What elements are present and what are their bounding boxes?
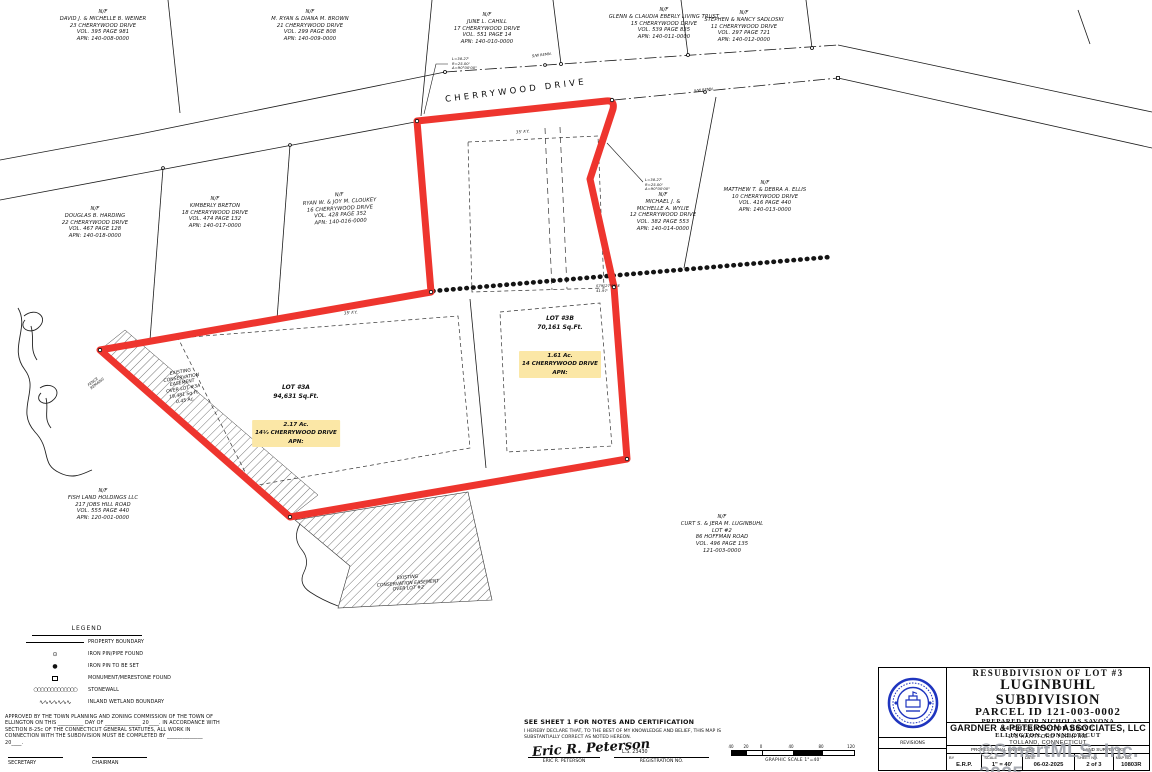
surveyor-name-line: ERIC R. PETERSON: [528, 757, 600, 764]
parcel-label-breton: N/F KIMBERLY BRETON 18 CHERRYWOOD DRIVE …: [182, 196, 248, 230]
title-block-titles: RESUBDIVISION OF LOT #3 LUGINBUHL SUBDIV…: [947, 668, 1149, 723]
legend-row-stonewall: ○○○○○○○○○○○○○ STONEWALL: [22, 686, 172, 696]
secretary-signature-line: SECRETARY: [8, 757, 63, 766]
parcel-label-wylie: N/F MICHAEL J. & MICHELLE A. WYLIE 12 CH…: [630, 192, 696, 233]
revisions-label: REVISIONS: [879, 738, 946, 749]
legend-row-iron-pin-pipe-found: ⊙ IRON PIN/PIPE FOUND: [22, 650, 172, 660]
title-block: REVISIONS RESUBDIVISION OF LOT #3 LUGINB…: [878, 667, 1150, 771]
title-block-left-column: REVISIONS: [879, 668, 947, 770]
legend-row-monument-found: MONUMENT/MERESTONE FOUND: [22, 674, 172, 684]
parcel-label-weiner: N/F DAVID J. & MICHELLE B. WEINER 23 CHE…: [60, 9, 147, 43]
field-sheet-no: SHEET NO. 2 of 3: [1074, 754, 1112, 770]
stonewall-symbol: ○○○○○○○○○○○○○: [22, 688, 88, 694]
parcel-label-brown: N/F M. RYAN & DIANA M. BROWN 21 CHERRYWO…: [271, 9, 349, 43]
conservation-easement-3a-label: EXISTING CONSERVATION EASEMENT OVER LOT …: [162, 367, 204, 407]
lot-3a-label: LOT #3A 94,631 Sq.Ft. 2.17 Ac. 14½ CHERR…: [252, 365, 340, 466]
stonewall-lines: [103, 257, 830, 514]
parcel-label-cloukey: N/F RYAN W. & JOY M. CLOUKEY 16 CHERRYWO…: [302, 190, 378, 228]
lot-3b-title: LOT #3B 70,161 Sq.Ft.: [519, 315, 601, 332]
curve-note-east: L=38.27' R=25.00' Δ=90°00'00": [645, 178, 670, 192]
parcel-label-cahill: N/F JUNE L. CAHILL 17 CHERRYWOOD DRIVE V…: [454, 12, 520, 46]
surveyor-seal: [886, 676, 940, 730]
parcel-label-sadloski: N/F STEPHEN & NANCY SADLOSKI 11 CHERRYWO…: [704, 10, 783, 44]
parcel-label-fish-land: N/F FISH LAND HOLDINGS LLC 217 JOBS HILL…: [68, 488, 138, 522]
property-boundary-symbol: [22, 642, 88, 643]
profession-engineers: PROFESSIONAL ENGINEERS: [971, 747, 1035, 752]
subdivision-title: LUGINBUHL SUBDIVISION: [947, 678, 1149, 707]
approval-statement: APPROVED BY THE TOWN PLANNING AND ZONING…: [5, 714, 221, 746]
registration-label-line: REGISTRATION NO.: [614, 757, 709, 764]
firm-professions: PROFESSIONAL ENGINEERS LAND SURVEYORS: [947, 746, 1149, 754]
survey-plat-canvas: CHERRYWOOD DRIVE N/F DAVID J. & MICHELLE…: [0, 0, 1152, 772]
title-block-fields: BY E.R.P. SCALE 1" = 40' DATE 06-02-2025…: [947, 754, 1149, 770]
field-date: DATE 06-02-2025: [1022, 754, 1075, 770]
firm-name: GARDNER & PETERSON ASSOCIATES, LLC: [947, 724, 1149, 734]
front-yard-setback-label-2: 35' F.Y.: [344, 311, 358, 317]
firm-block: GARDNER & PETERSON ASSOCIATES, LLC 178 H…: [947, 723, 1149, 746]
curve-note-top: L=38.27' R=25.00' Δ=90°00'00": [452, 57, 477, 71]
monument-merestone-symbol: [22, 676, 88, 682]
graphic-scale-caption: GRAPHIC SCALE 1"=40': [731, 758, 855, 763]
chairman-signature-line: CHAIRMAN: [92, 757, 147, 766]
legend: LEGEND PROPERTY BOUNDARY ⊙ IRON PIN/PIPE…: [22, 626, 172, 708]
parcel-label-luginbuhl: N/F CURT S. & JERA M. LUGINBUHL LOT #2 8…: [681, 514, 763, 555]
legend-title: LEGEND: [32, 626, 142, 636]
lot-3a-title: LOT #3A 94,631 Sq.Ft.: [252, 384, 340, 401]
parcel-label-eberly: N/F GLENN & CLAUDIA EBERLY LIVING TRUST …: [609, 7, 719, 41]
lot-3a-highlighted-address: 2.17 Ac. 14½ CHERRYWOOD DRIVE APN:: [252, 420, 340, 446]
bearing-note: S79°27'09"E 41.97': [596, 284, 620, 293]
parcel-label-ellis: N/F MATTHEW T. & DEBRA A. ELLIS 10 CHERR…: [724, 180, 807, 214]
legend-row-inland-wetland: ∿∿∿∿∿∿∿ INLAND WETLAND BOUNDARY: [22, 698, 172, 708]
profession-surveyors: LAND SURVEYORS: [1083, 747, 1125, 752]
lot-3b-label: LOT #3B 70,161 Sq.Ft. 1.61 Ac. 14 CHERRY…: [519, 296, 601, 397]
certification-block: SEE SHEET 1 FOR NOTES AND CERTIFICATION …: [524, 719, 729, 741]
field-by: BY E.R.P.: [947, 754, 981, 770]
graphic-scale: 40 20 0 40 80 120 GRAPHIC SCALE 1"=40': [731, 744, 855, 763]
iron-pin-to-be-set-symbol: ●: [22, 664, 88, 670]
surveyor-seal-box: [879, 668, 946, 738]
field-scale: SCALE 1" = 40': [981, 754, 1021, 770]
certification-heading: SEE SHEET 1 FOR NOTES AND CERTIFICATION: [524, 719, 729, 727]
graphic-scale-bar: [731, 750, 855, 756]
field-map-no: MAP NO. 10803R: [1113, 754, 1149, 770]
parcel-label-harding: N/F DOUGLAS B. HARDING 22 CHERRYWOOD DRI…: [62, 206, 128, 240]
lot-3b-highlighted-address: 1.61 Ac. 14 CHERRYWOOD DRIVE APN:: [519, 351, 601, 377]
legend-row-iron-pin-to-be-set: ● IRON PIN TO BE SET: [22, 662, 172, 672]
legend-row-property-boundary: PROPERTY BOUNDARY: [22, 638, 172, 648]
registration-number: L.S. 23430: [622, 750, 648, 755]
iron-pin-pipe-found-symbol: ⊙: [22, 652, 88, 658]
inland-wetland-symbol: ∿∿∿∿∿∿∿: [22, 700, 88, 706]
front-yard-setback-label-1: 35' F.Y.: [516, 130, 530, 136]
title-block-right-column: RESUBDIVISION OF LOT #3 LUGINBUHL SUBDIV…: [947, 668, 1149, 770]
graphic-scale-ticks: 40 20 0 40 80 120: [731, 744, 855, 750]
